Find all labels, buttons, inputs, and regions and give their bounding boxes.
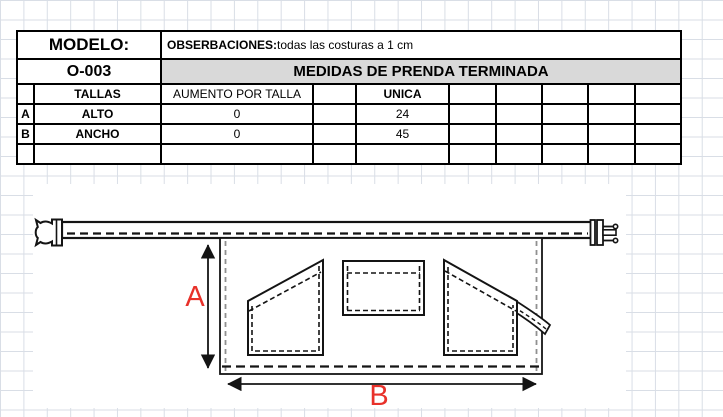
cell-empty[interactable] xyxy=(450,125,497,145)
cell-observaciones[interactable]: OBSERBACIONES: todas las costuras a 1 cm xyxy=(162,32,682,60)
cell-row-unica[interactable]: 24 xyxy=(357,105,450,125)
spec-table: MODELO: OBSERBACIONES: todas las costura… xyxy=(16,30,682,165)
cell-table-title[interactable]: MEDIDAS DE PRENDA TERMINADA xyxy=(162,60,682,85)
cell-empty[interactable] xyxy=(18,85,35,105)
cell-header-tallas[interactable]: TALLAS xyxy=(35,85,162,105)
buckle-female-icon xyxy=(36,220,62,246)
cell-empty[interactable] xyxy=(497,145,543,165)
cell-empty[interactable] xyxy=(543,85,589,105)
cell-row-unica[interactable]: 45 xyxy=(357,125,450,145)
cell-row-aumento[interactable]: 0 xyxy=(162,105,314,125)
cell-header-unica[interactable]: UNICA xyxy=(357,85,450,105)
cell-empty[interactable] xyxy=(450,85,497,105)
cell-row-letter[interactable]: B xyxy=(18,125,35,145)
cell-header-aumento[interactable]: AUMENTO POR TALLA xyxy=(162,85,314,105)
cell-empty[interactable] xyxy=(497,125,543,145)
cell-empty[interactable] xyxy=(636,85,682,105)
cell-empty[interactable] xyxy=(589,145,636,165)
cell-empty[interactable] xyxy=(589,105,636,125)
cell-row-name[interactable]: ALTO xyxy=(35,105,162,125)
cell-empty[interactable] xyxy=(636,145,682,165)
dim-label-b: B xyxy=(369,380,388,408)
cell-modelo-value[interactable]: O-003 xyxy=(18,60,162,85)
cell-empty[interactable] xyxy=(497,85,543,105)
apron-technical-drawing: A B xyxy=(33,184,626,408)
cell-empty[interactable] xyxy=(314,125,357,145)
cell-empty[interactable] xyxy=(543,145,589,165)
cell-row-aumento[interactable]: 0 xyxy=(162,125,314,145)
cell-empty[interactable] xyxy=(450,105,497,125)
cell-empty[interactable] xyxy=(543,125,589,145)
cell-empty[interactable] xyxy=(636,105,682,125)
cell-empty[interactable] xyxy=(497,105,543,125)
cell-empty[interactable] xyxy=(636,125,682,145)
dimension-arrow-height: A xyxy=(185,245,208,368)
spreadsheet-background: MODELO: OBSERBACIONES: todas las costura… xyxy=(0,0,723,417)
cell-empty[interactable] xyxy=(357,145,450,165)
waist-belt xyxy=(62,222,592,238)
pocket-center xyxy=(343,261,424,315)
cell-empty[interactable] xyxy=(314,145,357,165)
cell-empty[interactable] xyxy=(589,85,636,105)
dim-label-a: A xyxy=(185,281,205,313)
cell-empty[interactable] xyxy=(543,105,589,125)
cell-empty[interactable] xyxy=(35,145,162,165)
cell-row-name[interactable]: ANCHO xyxy=(35,125,162,145)
dimension-arrow-width: B xyxy=(228,380,536,408)
cell-modelo-label[interactable]: MODELO: xyxy=(18,32,162,60)
cell-empty[interactable] xyxy=(450,145,497,165)
observaciones-text: todas las costuras a 1 cm xyxy=(277,38,413,52)
cell-empty[interactable] xyxy=(314,105,357,125)
cell-empty[interactable] xyxy=(589,125,636,145)
observaciones-label: OBSERBACIONES: xyxy=(167,38,277,52)
cell-row-letter[interactable]: A xyxy=(18,105,35,125)
cell-empty[interactable] xyxy=(162,145,314,165)
cell-empty[interactable] xyxy=(18,145,35,165)
buckle-male-icon xyxy=(591,220,618,245)
cell-empty[interactable] xyxy=(314,85,357,105)
